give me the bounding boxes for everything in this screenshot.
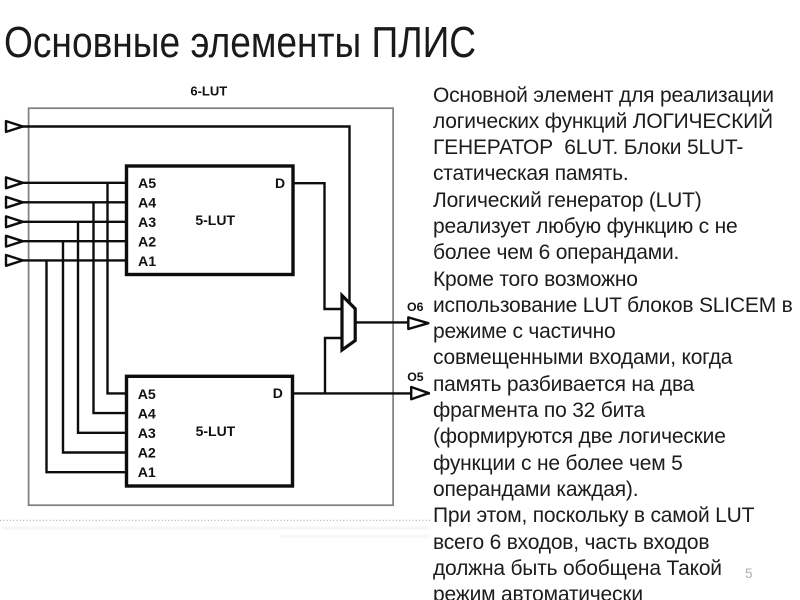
svg-text:A3: A3	[138, 215, 156, 231]
svg-text:O5: O5	[407, 370, 424, 384]
svg-text:A3: A3	[138, 426, 156, 442]
svg-text:A2: A2	[138, 445, 156, 461]
svg-text:A2: A2	[138, 235, 156, 251]
svg-text:O6: O6	[407, 300, 424, 314]
svg-text:6-LUT: 6-LUT	[190, 84, 227, 99]
svg-text:A5: A5	[138, 176, 156, 192]
svg-text:D: D	[275, 175, 285, 191]
svg-text:5-LUT: 5-LUT	[196, 423, 236, 439]
svg-text:A1: A1	[138, 254, 156, 270]
svg-text:5-LUT: 5-LUT	[195, 212, 235, 228]
svg-text:D: D	[273, 385, 283, 401]
svg-text:A5: A5	[138, 387, 156, 403]
svg-text:A1: A1	[138, 465, 156, 481]
svg-text:A4: A4	[138, 196, 156, 212]
svg-text:A4: A4	[138, 406, 156, 422]
